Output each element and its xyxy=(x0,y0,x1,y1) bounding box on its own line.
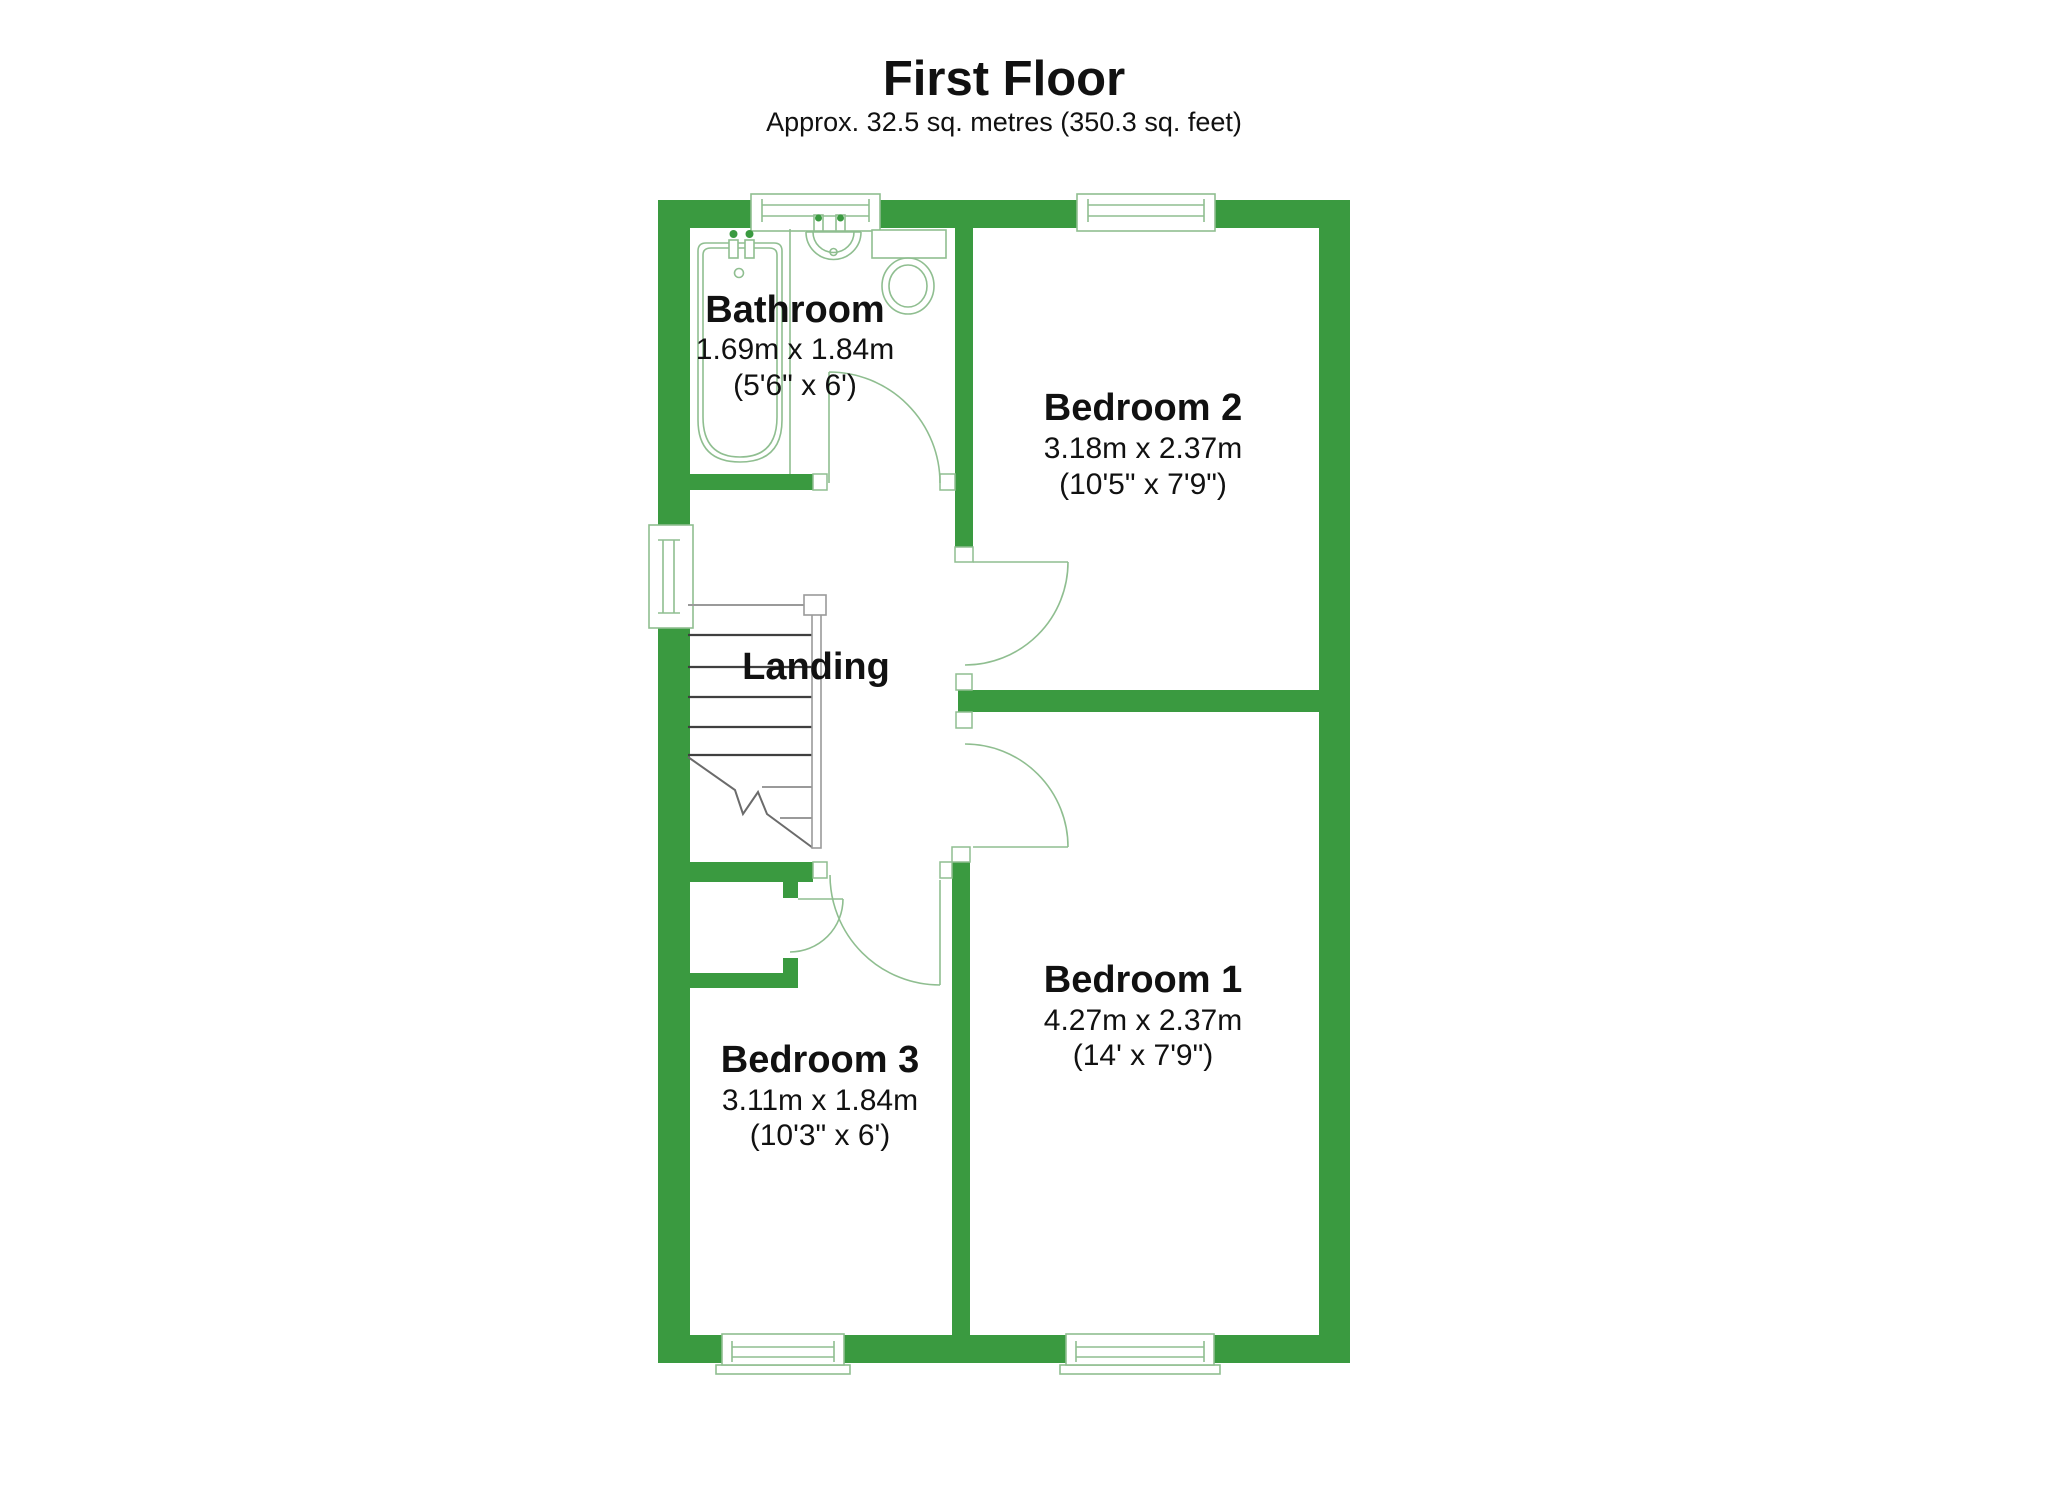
staircase xyxy=(688,595,826,848)
bedroom2-label: Bedroom 2 3.18m x 2.37m (10'5" x 7'9") xyxy=(1044,387,1242,501)
room-name: Bedroom 3 xyxy=(721,1039,919,1081)
wall-cupboard-south xyxy=(690,973,798,988)
jamb xyxy=(813,474,827,490)
bedroom3-label: Bedroom 3 3.11m x 1.84m (10'3" x 6') xyxy=(721,1039,919,1152)
bedroom1-label: Bedroom 1 4.27m x 2.37m (14' x 7'9") xyxy=(1044,959,1242,1072)
landing-window xyxy=(649,525,693,628)
room-name: Bathroom xyxy=(705,289,884,331)
landing-label: Landing xyxy=(742,646,890,688)
room-name: Bedroom 1 xyxy=(1044,959,1242,1001)
jamb xyxy=(955,547,973,562)
wall-bathroom-south xyxy=(690,474,813,490)
bedroom2-window xyxy=(1077,194,1215,231)
jamb xyxy=(952,847,970,862)
jamb xyxy=(956,674,972,690)
page-subtitle: Approx. 32.5 sq. metres (350.3 sq. feet) xyxy=(766,107,1242,137)
wall-right xyxy=(1319,200,1350,1363)
jamb xyxy=(813,862,827,878)
room-dims-imperial: (5'6" x 6') xyxy=(733,369,857,402)
tap-icon xyxy=(837,215,844,222)
room-dims-imperial: (10'5" x 7'9") xyxy=(1059,468,1227,501)
room-dims-imperial: (14' x 7'9") xyxy=(1073,1039,1214,1072)
wall-cupboard-pier-top xyxy=(783,882,798,898)
tap-icon xyxy=(815,215,822,222)
room-dims-metric: 3.11m x 1.84m xyxy=(722,1084,918,1117)
room-dims-metric: 1.69m x 1.84m xyxy=(696,333,894,366)
bedroom2-door xyxy=(965,562,1068,665)
bedroom3-door xyxy=(830,875,940,985)
wall-bathroom-bedroom2 xyxy=(955,228,973,547)
bedroom1-door xyxy=(965,744,1068,847)
wall-bedroom1-west xyxy=(952,862,970,1335)
page-title: First Floor xyxy=(883,52,1125,106)
room-name: Landing xyxy=(742,646,890,688)
tap-icon xyxy=(730,230,738,238)
room-dims-metric: 3.18m x 2.37m xyxy=(1044,432,1242,465)
floorplan-page: First Floor Approx. 32.5 sq. metres (350… xyxy=(0,0,2048,1489)
wall-left xyxy=(658,200,690,1363)
jamb xyxy=(956,712,972,728)
floorplan-drawing: First Floor Approx. 32.5 sq. metres (350… xyxy=(0,0,2048,1489)
wall-bedroom1-bedroom2 xyxy=(958,690,1319,712)
bathroom-label: Bathroom 1.69m x 1.84m (5'6" x 6') xyxy=(696,289,894,402)
room-dims-imperial: (10'3" x 6') xyxy=(750,1119,891,1152)
newel-post xyxy=(804,595,826,615)
room-dims-metric: 4.27m x 2.37m xyxy=(1044,1004,1242,1037)
jamb xyxy=(940,862,952,878)
bedroom1-window xyxy=(1060,1334,1220,1374)
wall-landing-bedroom3 xyxy=(690,862,813,882)
tap-icon xyxy=(746,230,754,238)
bedroom3-window xyxy=(716,1334,850,1374)
room-name: Bedroom 2 xyxy=(1044,387,1242,429)
jamb xyxy=(940,474,955,490)
wall-cupboard-pier-bottom xyxy=(783,958,798,974)
